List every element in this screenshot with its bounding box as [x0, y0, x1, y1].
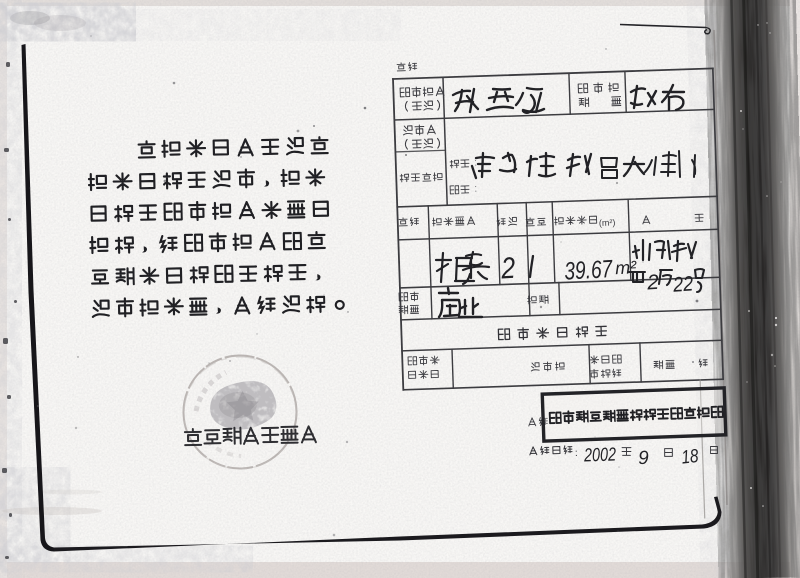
svg-text:(m²): (m²) [599, 217, 616, 228]
svg-text:9: 9 [638, 448, 650, 469]
svg-text:m²: m² [615, 257, 638, 278]
svg-text:2002: 2002 [583, 444, 617, 466]
svg-text:22: 22 [672, 272, 695, 296]
svg-text:39.67: 39.67 [564, 255, 614, 286]
svg-text::: : [575, 448, 578, 459]
svg-text:2: 2 [645, 271, 660, 295]
svg-text:18: 18 [680, 446, 699, 469]
svg-text:2: 2 [499, 252, 516, 286]
